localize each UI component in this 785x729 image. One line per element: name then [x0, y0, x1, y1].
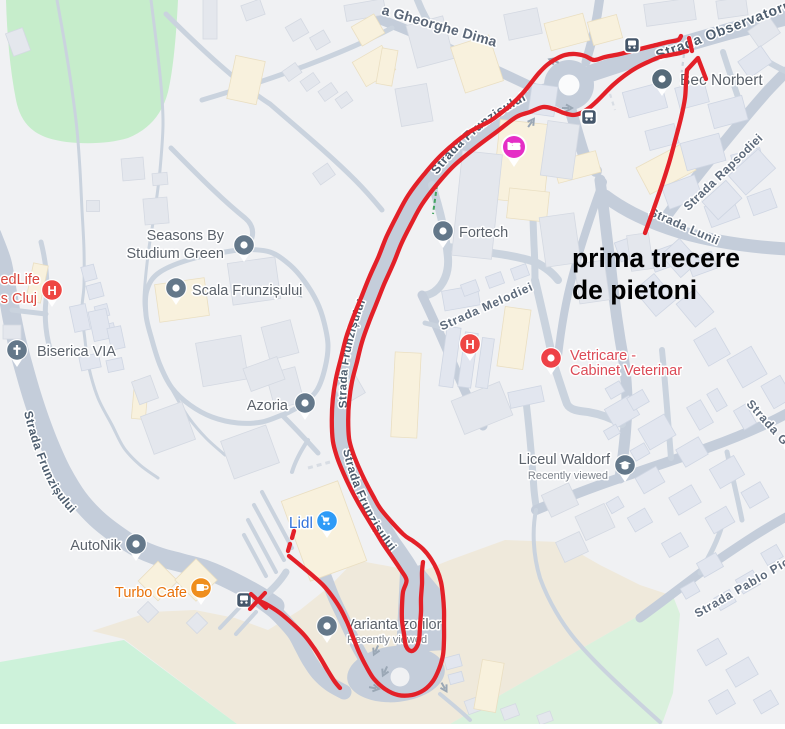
- svg-text:Bec Norbert: Bec Norbert: [680, 72, 763, 89]
- svg-text:Fortech: Fortech: [459, 225, 508, 241]
- svg-text:Recently viewed: Recently viewed: [528, 470, 608, 482]
- svg-text:s Cluj: s Cluj: [1, 291, 37, 307]
- svg-text:Biserica VIA: Biserica VIA: [37, 344, 116, 360]
- svg-text:Studium Green: Studium Green: [126, 246, 224, 262]
- svg-text:edLife: edLife: [0, 272, 40, 288]
- svg-text:Scala Frunzișului: Scala Frunzișului: [192, 283, 302, 299]
- svg-text:Varianta zorilor: Varianta zorilor: [345, 617, 442, 633]
- svg-text:Seasons By: Seasons By: [147, 228, 225, 244]
- svg-text:Azoria: Azoria: [247, 398, 289, 414]
- svg-text:Cabinet Veterinar: Cabinet Veterinar: [570, 363, 682, 379]
- svg-text:H: H: [465, 337, 474, 352]
- svg-text:Lidl: Lidl: [289, 515, 313, 532]
- svg-text:Turbo Cafe: Turbo Cafe: [115, 585, 187, 601]
- svg-text:prima trecere: prima trecere: [572, 243, 740, 273]
- svg-text:Recently viewed: Recently viewed: [347, 634, 427, 646]
- svg-text:Liceul Waldorf: Liceul Waldorf: [519, 452, 611, 468]
- svg-text:Vetricare -: Vetricare -: [570, 348, 636, 364]
- svg-text:AutoNik: AutoNik: [70, 538, 122, 554]
- svg-text:de pietoni: de pietoni: [572, 275, 697, 305]
- svg-text:H: H: [47, 283, 56, 298]
